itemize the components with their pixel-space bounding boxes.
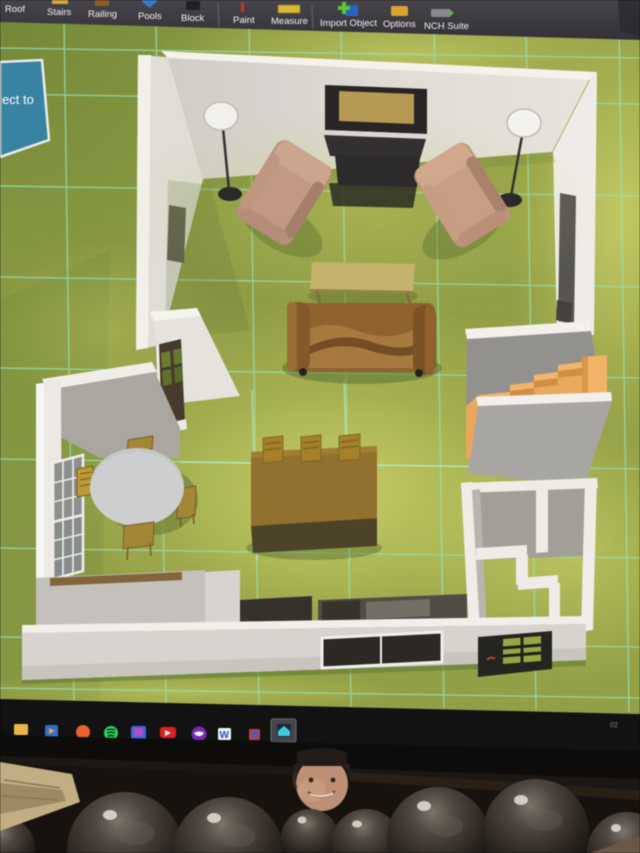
svg-text:Pools: Pools [138,11,162,22]
svg-text:Stairs: Stairs [47,7,72,18]
svg-text:Import Object: Import Object [320,18,377,29]
svg-text:02: 02 [610,722,618,729]
svg-text:Roof: Roof [5,4,25,15]
svg-text:NCH Suite: NCH Suite [424,21,469,32]
svg-text:Measure: Measure [271,16,308,27]
svg-text:Options: Options [383,19,416,30]
svg-text:Block: Block [181,13,204,24]
svg-text:Paint: Paint [233,15,255,26]
svg-text:Railing: Railing [88,9,117,20]
svg-text:W: W [220,730,230,741]
